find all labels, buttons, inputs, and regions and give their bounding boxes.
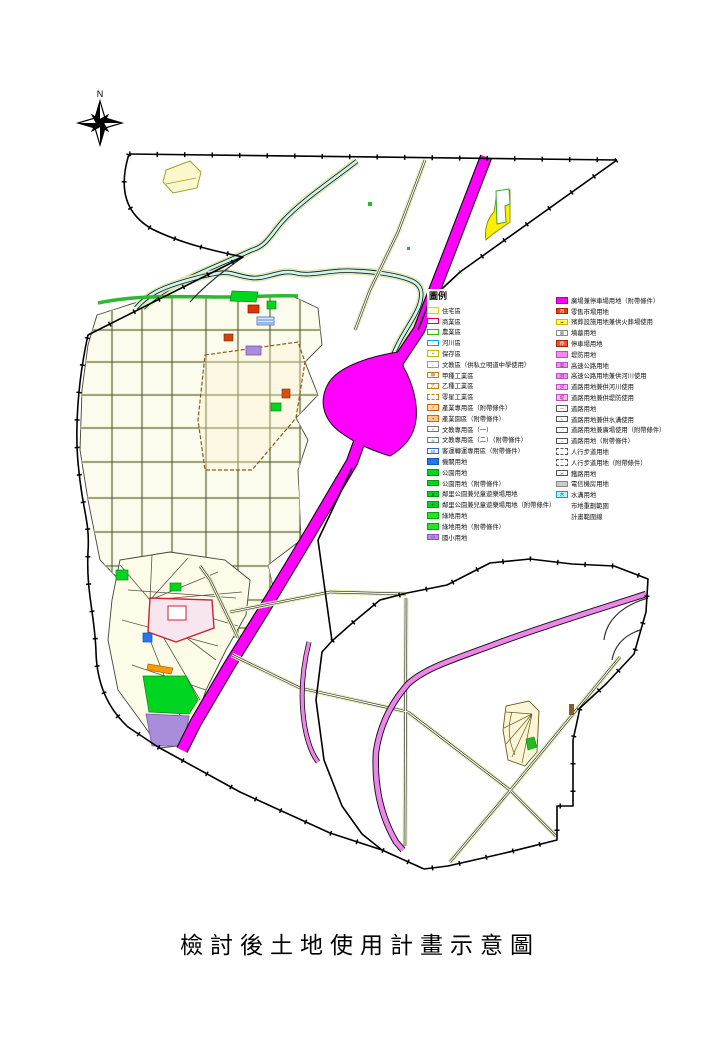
legend-swatch: ∶∶ bbox=[427, 361, 439, 368]
legend-swatch: · bbox=[556, 459, 568, 466]
legend-item: 廣場兼停車場用地（附帶條件） bbox=[556, 295, 685, 306]
legend-swatch: 乙 bbox=[427, 383, 439, 390]
legend-swatch: ∕∕ bbox=[427, 404, 439, 411]
legend-item: 高高速公路用地 bbox=[556, 360, 685, 371]
legend-item-label: 國小用地 bbox=[442, 533, 467, 542]
legend-item-label: 廣場兼停車場用地（附帶條件） bbox=[571, 296, 659, 305]
legend-item: 電信機房用地 bbox=[556, 479, 685, 490]
legend-item: 停停車場用地 bbox=[556, 338, 685, 349]
legend-item-label: 乙種工業區 bbox=[442, 381, 473, 390]
legend-swatch: ·¨ bbox=[556, 427, 568, 434]
legend-swatch: · bbox=[427, 523, 439, 530]
legend-swatch: + bbox=[427, 426, 439, 433]
legend-swatch: 停 bbox=[556, 340, 568, 347]
legend-item: ·¨道路用地兼廣場使用（附帶條件） bbox=[556, 425, 685, 436]
legend-item-label: 計畫範圍線 bbox=[571, 512, 602, 521]
legend-item-label: 商業區 bbox=[442, 317, 461, 326]
legend-item: ••殯葬設施用地兼供火葬場使用 bbox=[556, 317, 685, 328]
elementary-school-parcel bbox=[246, 346, 261, 355]
legend-swatch: ≈ bbox=[556, 416, 568, 423]
legend-item-label: 人行步道用地 bbox=[571, 447, 609, 456]
legend-item-label: 道路用地兼供水溝使用 bbox=[571, 415, 634, 424]
legend-swatch: ▪ bbox=[427, 415, 439, 422]
legend-swatch bbox=[427, 512, 439, 519]
legend-swatch: 甲 bbox=[427, 372, 439, 379]
legend-item-label: 鄰里公園兼兒童遊樂場用地 bbox=[442, 489, 518, 498]
legend-swatch: 河 bbox=[556, 373, 568, 380]
legend-swatch bbox=[556, 481, 568, 488]
legend-item: ≈道路用地兼供水溝使用 bbox=[556, 414, 685, 425]
legend-item: ≍鐵路用地 bbox=[556, 468, 685, 479]
legend-item: 零星工業區 bbox=[427, 391, 556, 402]
legend-item-label: 鄰里公園兼兒童遊樂場用地（附帶條件） bbox=[442, 500, 555, 509]
legend-item: 人行步道用地 bbox=[556, 446, 685, 457]
legend-item-label: 零星工業區 bbox=[442, 392, 473, 401]
legend-item-label: 道路用地兼供堤防使用 bbox=[571, 393, 634, 402]
legend-item-label: 道路用地兼廣場使用（附帶條件） bbox=[571, 425, 665, 434]
legend-item: 市零售市場用地 bbox=[556, 306, 685, 317]
legend-item: 公園用地 bbox=[427, 467, 556, 478]
legend-swatch bbox=[427, 329, 439, 336]
legend-swatch: — bbox=[556, 405, 568, 412]
legend-item: ·人行步道用地（附帶條件） bbox=[556, 457, 685, 468]
park-parcel bbox=[170, 583, 181, 591]
legend-swatch bbox=[427, 469, 439, 476]
legend-item-label: 產業專用區（附帶條件） bbox=[442, 403, 511, 412]
legend-swatch: •• bbox=[556, 319, 568, 326]
legend-item-label: 綠地用地（附帶條件） bbox=[442, 522, 505, 531]
legend-item-label: 高速公路用地 bbox=[571, 361, 609, 370]
legend-item-label: 文教專用區（二）（附帶條件） bbox=[442, 435, 527, 444]
legend-item-label: 機關用地 bbox=[442, 457, 467, 466]
legend-item-label: 農業區 bbox=[442, 327, 461, 336]
legend-swatch bbox=[427, 458, 439, 465]
legend-item-label: 高速公路用地兼供河川使用 bbox=[571, 371, 647, 380]
legend-item: ·綠地用地（附帶條件） bbox=[427, 521, 556, 532]
legend-swatch bbox=[427, 394, 439, 401]
legend-item: ∗鄰里公園兼兒童遊樂場用地 bbox=[427, 489, 556, 500]
legend-swatch: ≍ bbox=[556, 470, 568, 477]
legend-item: 市地重劃範圍 bbox=[556, 500, 685, 511]
legend-item-label: 人行步道用地（附帶條件） bbox=[571, 458, 647, 467]
legend-item-label: 公園用地（附帶條件） bbox=[442, 479, 505, 488]
legend-item-label: 電信機房用地 bbox=[571, 479, 609, 488]
legend-item-label: 公園用地 bbox=[442, 468, 467, 477]
park-parcel bbox=[116, 570, 128, 580]
legend-swatch bbox=[556, 297, 568, 304]
legend-item: ·公園用地（附帶條件） bbox=[427, 478, 556, 489]
legend-swatch bbox=[427, 318, 439, 325]
legend-swatch bbox=[556, 351, 568, 358]
legend-item: 乙乙種工業區 bbox=[427, 381, 556, 392]
legend-item: –道路用地（附帶條件） bbox=[556, 435, 685, 446]
legend-item: 河道路用地兼供河川使用 bbox=[556, 381, 685, 392]
legend-swatch: • bbox=[427, 350, 439, 357]
legend-item-label: 產業園區（附帶條件） bbox=[442, 414, 505, 423]
legend-item: 小國小用地 bbox=[427, 532, 556, 543]
legend-item-label: 保存區 bbox=[442, 349, 461, 358]
pink-road-corridors bbox=[302, 594, 646, 850]
legend-item-label: 墳墓用地 bbox=[571, 328, 596, 337]
legend-swatch: ∗· bbox=[427, 501, 439, 508]
legend-item: 計畫範圍線 bbox=[556, 511, 685, 522]
compass-rose: N bbox=[78, 89, 122, 145]
retail-market-parcel bbox=[248, 305, 259, 313]
legend-item-label: 住宅區 bbox=[442, 306, 461, 315]
legend-column-right: 廣場兼停車場用地（附帶條件）市零售市場用地••殯葬設施用地兼供火葬場使用墓墳墓用… bbox=[556, 295, 685, 543]
legend-item: ∶∶文教區（供私立明道中學使用） bbox=[427, 359, 556, 370]
legend-item-label: 鐵路用地 bbox=[571, 469, 596, 478]
legend-item-label: 道路用地（附帶條件） bbox=[571, 436, 634, 445]
map-caption: 檢討後土地使用計畫示意圖 bbox=[0, 926, 720, 960]
transit-parcel bbox=[257, 317, 274, 325]
legend-item: 機關用地 bbox=[427, 456, 556, 467]
legend-item: 河高速公路用地兼供河川使用 bbox=[556, 371, 685, 382]
legend-item-label: 河川區 bbox=[442, 338, 461, 347]
legend-item: •保存區 bbox=[427, 348, 556, 359]
legend-item: 甲甲種工業區 bbox=[427, 370, 556, 381]
legend-swatch: ∗ bbox=[427, 491, 439, 498]
legend-item: 商業區 bbox=[427, 316, 556, 327]
legend-swatch bbox=[427, 340, 439, 347]
legend-swatch: – bbox=[556, 438, 568, 445]
legend-item-label: 堤防用地 bbox=[571, 350, 596, 359]
legend-swatch: 墓 bbox=[556, 330, 568, 337]
legend-item-label: 市地重劃範圍 bbox=[571, 501, 609, 510]
compass-north-label: N bbox=[97, 89, 104, 99]
legend-item: 住宅區 bbox=[427, 305, 556, 316]
legend-item-label: 文教專用區（一） bbox=[442, 425, 492, 434]
legend: 圖例 住宅區商業區農業區河川區•保存區∶∶文教區（供私立明道中學使用）甲甲種工業… bbox=[427, 289, 685, 543]
legend-swatch bbox=[556, 448, 568, 455]
agency-parcel bbox=[143, 633, 152, 642]
legend-swatch: M bbox=[427, 448, 439, 455]
legend-item: ▪產業園區（附帶條件） bbox=[427, 413, 556, 424]
northwest-parcel bbox=[163, 161, 201, 193]
legend-swatch bbox=[427, 307, 439, 314]
legend-item-label: 綠地用地 bbox=[442, 511, 467, 520]
legend-swatch: ※ bbox=[427, 437, 439, 444]
legend-swatch: 小 bbox=[427, 534, 439, 541]
legend-item: 堤防用地 bbox=[556, 349, 685, 360]
legend-item-label: 殯葬設施用地兼供火葬場使用 bbox=[571, 317, 653, 326]
park-parcel bbox=[267, 301, 276, 309]
legend-item: ∕∕產業專用區（附帶條件） bbox=[427, 402, 556, 413]
land-use-plan-page: N bbox=[0, 0, 720, 1040]
legend-item-label: 文教區（供私立明道中學使用） bbox=[442, 360, 530, 369]
legend-item: 綠地用地 bbox=[427, 510, 556, 521]
legend-item: 農業區 bbox=[427, 327, 556, 338]
legend-swatch: · bbox=[427, 480, 439, 487]
legend-item-label: 道路用地兼供河川使用 bbox=[571, 382, 634, 391]
northeast-yellow-zone bbox=[485, 189, 510, 240]
legend-swatch: 市 bbox=[556, 308, 568, 315]
legend-item: M客運轉運專用區（附帶條件） bbox=[427, 445, 556, 456]
legend-item: 墓墳墓用地 bbox=[556, 327, 685, 338]
legend-column-left: 住宅區商業區農業區河川區•保存區∶∶文教區（供私立明道中學使用）甲甲種工業區乙乙… bbox=[427, 305, 556, 543]
legend-swatch: 高 bbox=[556, 362, 568, 369]
legend-item-label: 零售市場用地 bbox=[571, 307, 609, 316]
legend-item-label: 甲種工業區 bbox=[442, 371, 473, 380]
legend-item: +文教專用區（一） bbox=[427, 424, 556, 435]
legend-swatch: 堤 bbox=[556, 394, 568, 401]
legend-item-label: 道路用地 bbox=[571, 404, 596, 413]
legend-item: ∗·鄰里公園兼兒童遊樂場用地（附帶條件） bbox=[427, 499, 556, 510]
legend-item-label: 停車場用地 bbox=[571, 339, 602, 348]
legend-item: 堤道路用地兼供堤防使用 bbox=[556, 392, 685, 403]
legend-item: ※文教專用區（二）（附帶條件） bbox=[427, 435, 556, 446]
legend-item-label: 水溝用地 bbox=[571, 490, 596, 499]
legend-item-label: 客運轉運專用區（附帶條件） bbox=[442, 446, 524, 455]
legend-item: —道路用地 bbox=[556, 403, 685, 414]
legend-item: 河川區 bbox=[427, 337, 556, 348]
village-cluster bbox=[108, 552, 250, 748]
legend-item: 水水溝用地 bbox=[556, 489, 685, 500]
legend-swatch: 水 bbox=[556, 491, 568, 498]
legend-swatch: 河 bbox=[556, 384, 568, 391]
